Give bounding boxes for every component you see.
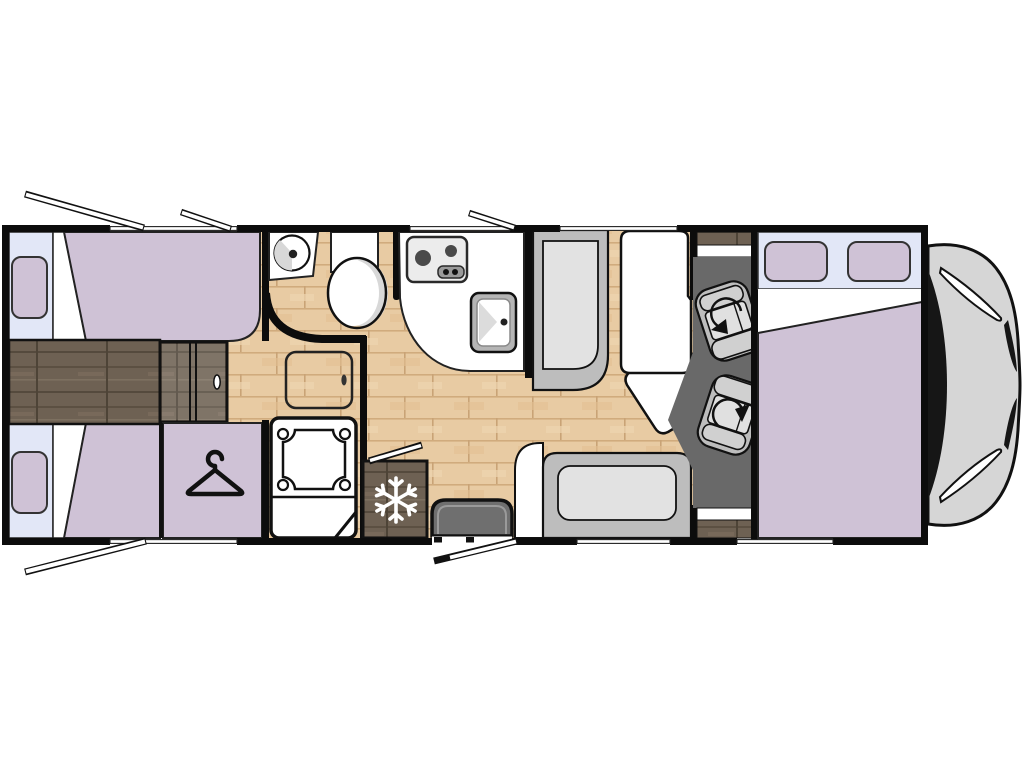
- vehicle-front-cab: [928, 245, 1020, 526]
- cab-trim-top: [697, 232, 752, 245]
- stove-control-panel: [438, 266, 464, 278]
- sill-tick: [434, 537, 442, 543]
- bottom-wall-segment: [2, 538, 110, 545]
- stove-burner-large: [415, 250, 431, 266]
- overcab-pillow-right: [848, 242, 910, 281]
- stove-burner-small: [445, 245, 457, 257]
- cab-white-band-bottom: [697, 508, 752, 520]
- top-wall-segment: [237, 225, 410, 232]
- washbasin-drain: [289, 250, 297, 258]
- shower-tray: [283, 430, 345, 489]
- window-dinette-bottom: [577, 540, 670, 544]
- top-wall-segment: [510, 225, 560, 232]
- cab-white-band-top: [697, 245, 752, 257]
- stove-knob: [443, 269, 449, 275]
- cab-trim-bottom: [697, 520, 752, 538]
- stove-knob: [452, 269, 458, 275]
- left-wall: [2, 225, 9, 545]
- shower-corner-dot: [278, 429, 288, 439]
- pillow-bottom-bed: [12, 452, 47, 513]
- dinette-bench-rear-cushion: [543, 241, 598, 369]
- dinette-table: [621, 231, 691, 373]
- shower-corner-dot: [278, 480, 288, 490]
- dinette-wall: [525, 225, 533, 378]
- window-overcab-bottom: [737, 540, 833, 544]
- wardrobe: [163, 423, 262, 538]
- right-wall: [921, 225, 928, 545]
- cab-wall-lower: [690, 505, 697, 543]
- motorhome-floorplan: [0, 0, 1024, 768]
- shower-corner-dot: [340, 480, 350, 490]
- bottom-wall-segment: [237, 538, 432, 545]
- window-kitchen-top: [410, 227, 510, 231]
- sill-tick: [466, 537, 474, 543]
- shower-corner-dot: [340, 429, 350, 439]
- entry: [432, 500, 512, 536]
- sink-faucet: [501, 319, 508, 326]
- pillow-top-bed: [12, 257, 47, 318]
- top-wall-segment: [677, 225, 928, 232]
- bottom-wall-segment: [833, 538, 928, 545]
- top-wall-segment: [2, 225, 110, 232]
- overcab-mattress: [758, 302, 922, 538]
- bedroom-wall-upper: [262, 228, 269, 341]
- dinette-bench-front-cushion: [558, 466, 676, 520]
- twin-bed-top: [64, 232, 260, 341]
- bottom-wall-segment: [670, 538, 737, 545]
- step-handle: [214, 375, 220, 389]
- bottom-wall-segment: [512, 538, 577, 545]
- bedroom-wall-lower: [262, 420, 269, 540]
- overcab-bed: [751, 225, 922, 543]
- center-walkway: [9, 340, 160, 424]
- shower: [271, 418, 356, 538]
- floorplan-canvas: [0, 0, 1024, 768]
- overcab-pillow-left: [765, 242, 827, 281]
- window-dinette-top: [560, 227, 677, 231]
- wardrobe-divider: [159, 423, 163, 538]
- sideboard-end-panel: [515, 443, 543, 538]
- hatch-handle: [341, 375, 346, 386]
- overcab-wall: [751, 225, 758, 543]
